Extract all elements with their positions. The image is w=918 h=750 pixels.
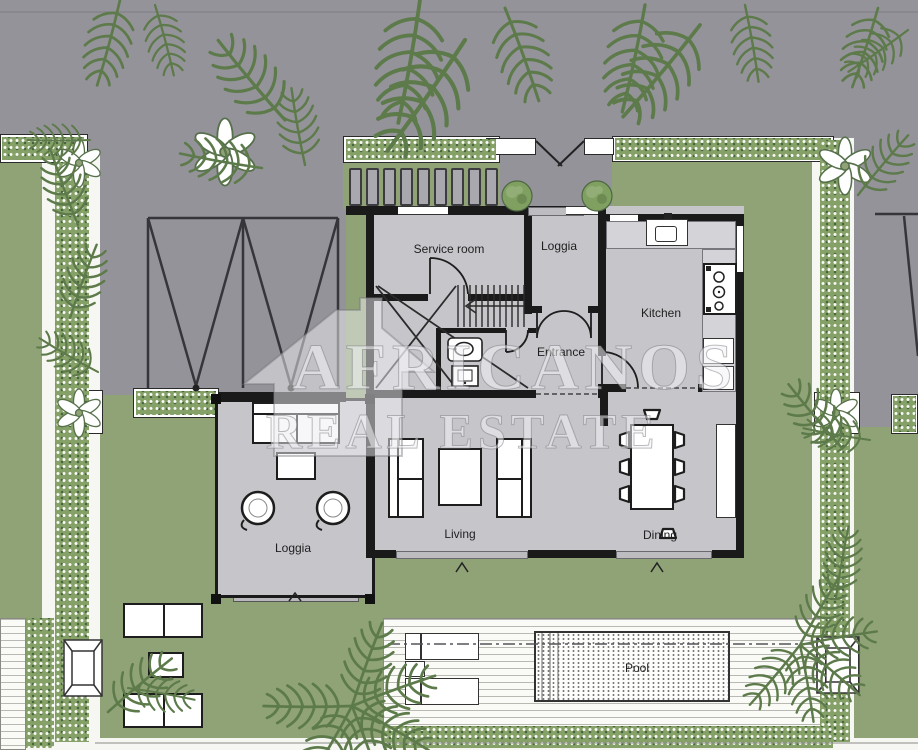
room-label-pool: Pool — [625, 661, 649, 675]
garden-gazebo-west — [64, 640, 102, 696]
fern-icon — [31, 324, 106, 387]
fern-icon — [368, 0, 451, 128]
dining-chair — [675, 459, 684, 475]
dining-chair — [620, 486, 629, 502]
dining-chair — [620, 459, 629, 475]
room-label-living: Living — [444, 527, 475, 541]
fern-icon — [76, 0, 142, 91]
palm-frond-icon — [264, 684, 352, 728]
stove-icon — [664, 213, 736, 314]
room-label-loggia-lower: Loggia — [275, 541, 311, 555]
entrance-gate-doors — [536, 141, 584, 166]
room-label-dining: Dining — [643, 528, 677, 542]
tree-icon — [582, 181, 612, 211]
dining-chair — [675, 486, 684, 502]
fern-icon — [52, 238, 115, 325]
site-floor-plan: Service room Loggia Kitchen Entrance Liv… — [0, 0, 918, 750]
room-label-kitchen: Kitchen — [641, 306, 681, 320]
fern-icon — [482, 0, 562, 109]
flower-icon — [55, 389, 102, 437]
service-door-arc — [430, 258, 468, 294]
garage-gate-right — [875, 214, 918, 356]
fern-icon — [818, 523, 866, 601]
threshold-arrows — [289, 563, 663, 601]
tap-icon — [664, 213, 672, 219]
flower-icon — [812, 389, 859, 437]
room-label-loggia-upper: Loggia — [541, 239, 577, 253]
dining-chair — [675, 432, 684, 448]
room-label-service: Service room — [414, 242, 485, 256]
fern-icon — [726, 2, 778, 86]
pool-steps — [542, 633, 558, 700]
tree-icon — [502, 181, 532, 211]
loggia-chairs — [242, 492, 349, 530]
watermark-brand-top: AFRICANOS — [292, 330, 738, 406]
watermark-brand-bottom: REAL ESTATE — [266, 402, 660, 460]
palm-plant — [264, 615, 443, 750]
fern-icon — [800, 412, 872, 457]
